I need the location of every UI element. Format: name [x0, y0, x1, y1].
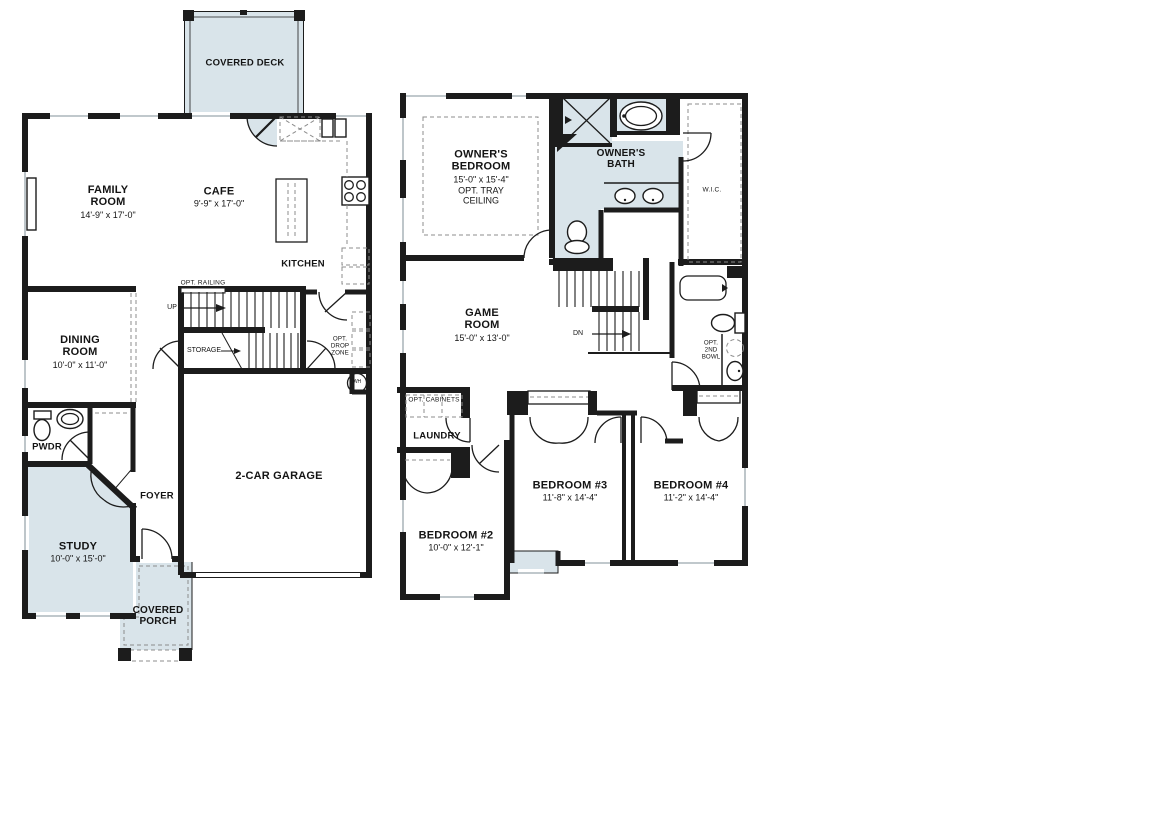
- opt-2nd-bowl-label: OPT. 2ND BOWL: [699, 341, 723, 362]
- cafe-label: CAFE 9'-9" x 17'-0": [174, 185, 264, 208]
- bedroom-3-door-icon: [595, 417, 621, 443]
- bedroom-2-label: BEDROOM #2 10'-0" x 12'-1": [401, 529, 511, 552]
- bedroom-4-door-icon: [641, 417, 667, 443]
- bedroom-4-label: BEDROOM #4 11'-2" x 14'-4": [636, 479, 746, 502]
- floor-plan-drawing: [0, 0, 1157, 836]
- hall-toilet-icon: [712, 313, 746, 333]
- covered-deck-structure: [183, 10, 305, 146]
- kitchen-island-icon: [276, 179, 307, 242]
- dn-arrow-icon: [592, 330, 631, 338]
- tub-icon: [620, 102, 662, 130]
- laundry-label: LAUNDRY: [413, 432, 461, 443]
- study-label: STUDY 10'-0" x 15'-0": [33, 540, 123, 563]
- first-floor-stairs: [181, 288, 298, 371]
- up-arrow-icon: [184, 304, 226, 312]
- wic-door-icon: [683, 133, 711, 161]
- hall-vanity-icon: [722, 334, 744, 386]
- wic-label: W.I.C.: [703, 186, 722, 193]
- opt-drop-zone-label: OPT. DROP ZONE: [327, 337, 353, 358]
- bedroom-4-closet: [697, 390, 740, 441]
- powder-door-icon: [62, 432, 90, 460]
- double-basin-sink-icon: [322, 119, 346, 137]
- bedroom-2-door-icon: [472, 445, 499, 472]
- powder-room-label: PWDR: [32, 443, 62, 454]
- wic-shelving-outline: [688, 104, 741, 262]
- bedroom-3-closet: [528, 391, 590, 443]
- owners-bedroom-door-icon: [524, 230, 552, 258]
- bedroom-3-label: BEDROOM #3 11'-8" x 14'-4": [515, 479, 625, 502]
- hall-bath-fixtures: [680, 276, 745, 386]
- dn-label: DN: [573, 330, 583, 338]
- owners-bath-label: OWNER'S BATH: [594, 148, 648, 170]
- owners-bedroom-label: OWNER'S BEDROOM 15'-0" x 15'-4" OPT. TRA…: [448, 149, 514, 206]
- up-label: UP: [167, 304, 177, 312]
- range-icon: [342, 177, 369, 205]
- sink-icon: [57, 410, 83, 429]
- dining-room-label: DINING ROOM 10'-0" x 11'-0": [55, 334, 105, 370]
- garage-label: 2-CAR GARAGE: [235, 470, 322, 482]
- game-room-label: GAME ROOM 15'-0" x 13'-0": [457, 307, 507, 343]
- storage-door-icon: [153, 341, 181, 369]
- hall-tub-icon: [680, 276, 728, 300]
- bedroom-2-closet: [403, 460, 452, 493]
- foyer-label: FOYER: [140, 492, 174, 503]
- toilet-icon: [34, 411, 51, 441]
- dining-cased-opening: [131, 293, 136, 403]
- family-room-label: FAMILY ROOM 14'-9" x 17'-0": [80, 184, 136, 220]
- opt-railing-label: OPT. RAILING: [181, 279, 226, 286]
- second-floor-stairs: [553, 258, 672, 353]
- kitchen-label: KITCHEN: [281, 260, 325, 271]
- water-heater-label: WH: [353, 380, 361, 386]
- covered-deck-label: COVERED DECK: [216, 59, 274, 70]
- opt-cabinets-label: OPT. CABINETS: [408, 396, 459, 403]
- covered-porch-label: COVERED PORCH: [132, 605, 184, 627]
- storage-label: STORAGE: [187, 347, 221, 355]
- floor-plan-canvas: COVERED DECK FAMILY ROOM 14'-9" x 17'-0"…: [0, 0, 1157, 836]
- owners-toilet-icon: [565, 221, 589, 254]
- mud-hall-door-icon: [319, 292, 347, 320]
- corner-sink-icon: [280, 117, 320, 141]
- front-door-icon: [142, 529, 172, 559]
